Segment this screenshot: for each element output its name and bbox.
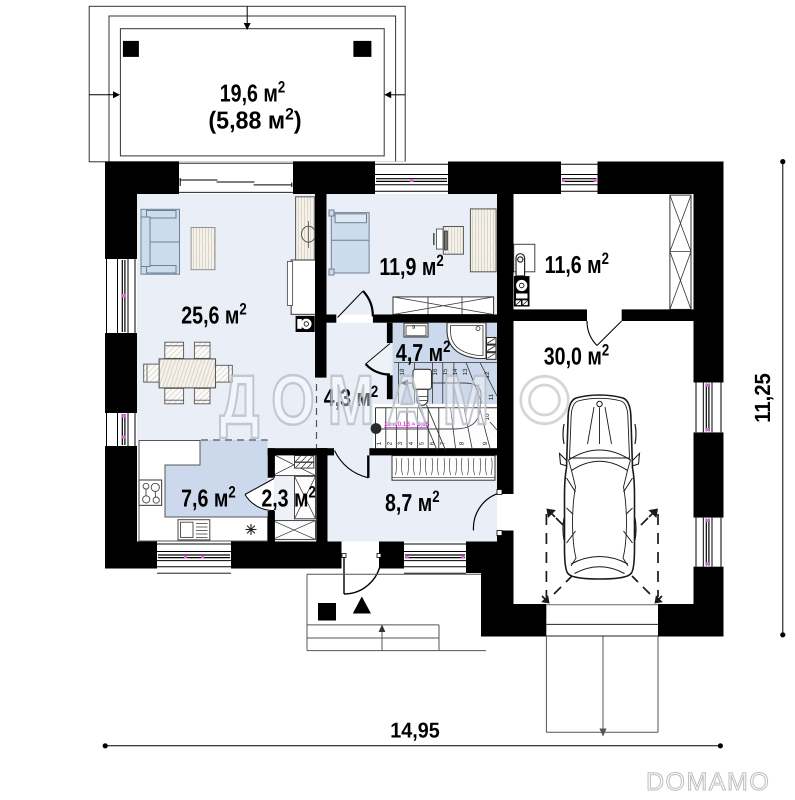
svg-text:16: 16: [432, 368, 439, 375]
svg-text:19,6 м2: 19,6 м2: [220, 79, 285, 108]
svg-text:О: О: [271, 361, 315, 439]
svg-text:7,6 м2: 7,6 м2: [181, 484, 236, 513]
svg-text:7: 7: [440, 441, 447, 445]
svg-text:8: 8: [459, 441, 466, 445]
svg-text:9: 9: [482, 441, 489, 445]
svg-text:Д: Д: [220, 361, 260, 439]
svg-text:4: 4: [408, 441, 415, 445]
svg-text:14,95: 14,95: [390, 719, 440, 743]
svg-text:М: М: [328, 361, 375, 439]
svg-text:М: М: [443, 361, 490, 439]
svg-text:2,3 м2: 2,3 м2: [261, 484, 316, 513]
svg-text:5: 5: [418, 441, 425, 445]
svg-text:11,6 м2: 11,6 м2: [545, 250, 609, 279]
svg-text:6: 6: [429, 441, 436, 445]
svg-text:8,7 м2: 8,7 м2: [385, 488, 440, 517]
svg-text:А: А: [387, 361, 427, 439]
svg-text:DOMAMO: DOMAMO: [646, 768, 770, 796]
svg-text:1: 1: [376, 441, 383, 445]
svg-text:25,6 м2: 25,6 м2: [181, 301, 246, 330]
svg-text:2: 2: [387, 441, 394, 445]
svg-text:11,9 м2: 11,9 м2: [379, 252, 443, 281]
svg-text:11,25: 11,25: [750, 373, 775, 423]
svg-text:30,0 м2: 30,0 м2: [544, 342, 609, 371]
svg-text:3: 3: [397, 441, 404, 445]
